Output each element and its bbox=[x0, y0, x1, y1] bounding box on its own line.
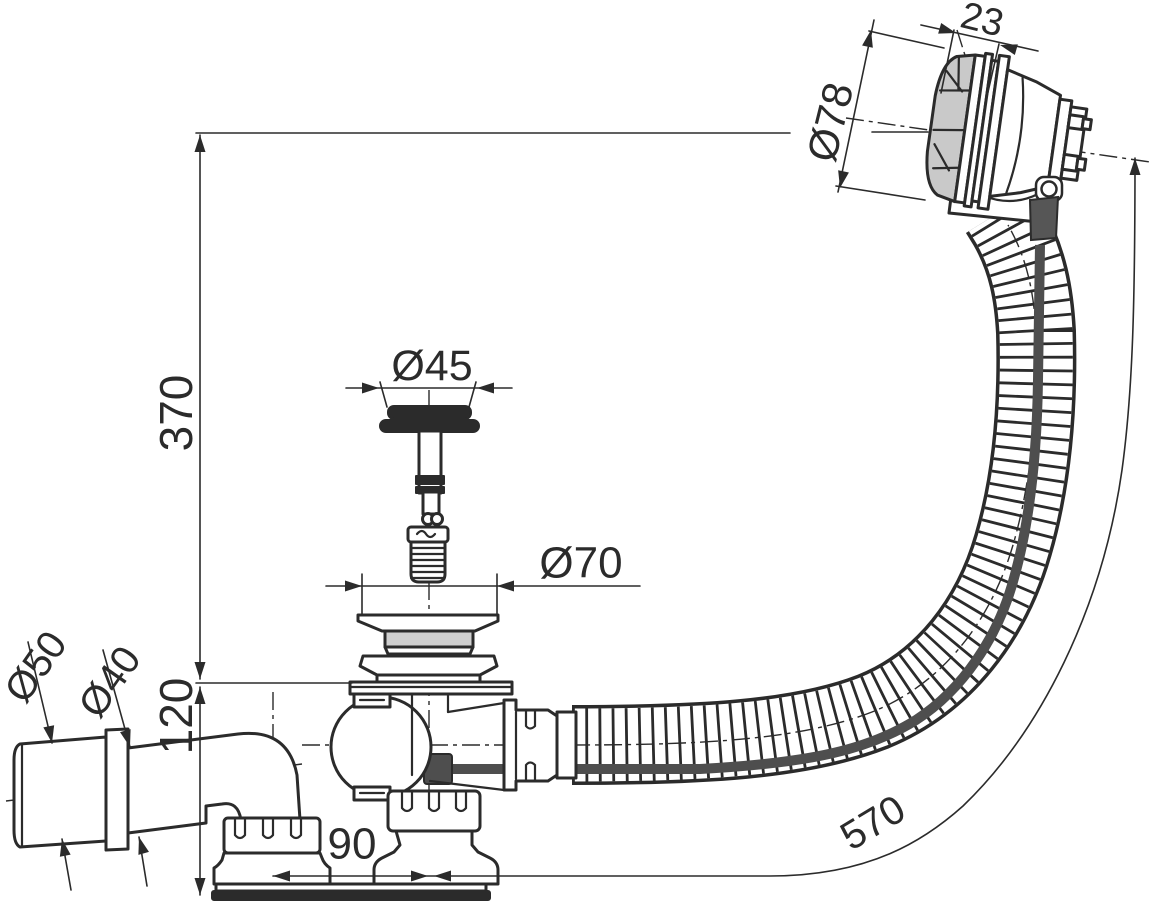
dimension-label-flange-diameter: Ø70 bbox=[539, 539, 622, 588]
drain-tail-column bbox=[374, 791, 498, 884]
hose-adapter bbox=[557, 712, 576, 778]
trap-body bbox=[331, 697, 431, 797]
strainer-flange bbox=[350, 615, 512, 694]
drain-body bbox=[331, 694, 504, 800]
dimension-label-base-height: 120 bbox=[150, 678, 202, 755]
dimension-label-plug-diameter: Ø45 bbox=[391, 342, 472, 390]
technical-drawing: 370 120 Ø45 Ø70 Ø50 Ø40 90 570 Ø78 23 bbox=[0, 0, 1157, 914]
cable-sleeve bbox=[1030, 177, 1062, 240]
base-plate bbox=[212, 884, 490, 900]
dimension-label-knob-diameter: Ø78 bbox=[798, 78, 863, 166]
flange-gray-ring bbox=[385, 631, 473, 647]
threaded-screw bbox=[408, 527, 448, 582]
coupling-nut bbox=[504, 700, 576, 790]
technical-drawing-page: 370 120 Ø45 Ø70 Ø50 Ø40 90 570 Ø78 23 bbox=[0, 0, 1157, 914]
pipe-collar bbox=[106, 729, 128, 850]
bath-plug bbox=[380, 406, 479, 525]
dimension-label-outlet-offset: 90 bbox=[328, 820, 377, 869]
dimension-label-knob-width: 23 bbox=[956, 0, 1007, 45]
dimension-label-outlet-pipe-diameter: Ø40 bbox=[70, 638, 149, 725]
dimension-label-outlet-outer-diameter: Ø50 bbox=[0, 623, 76, 710]
dimension-label-overflow-height: 370 bbox=[150, 375, 202, 452]
elbow-nut-column bbox=[214, 818, 330, 884]
